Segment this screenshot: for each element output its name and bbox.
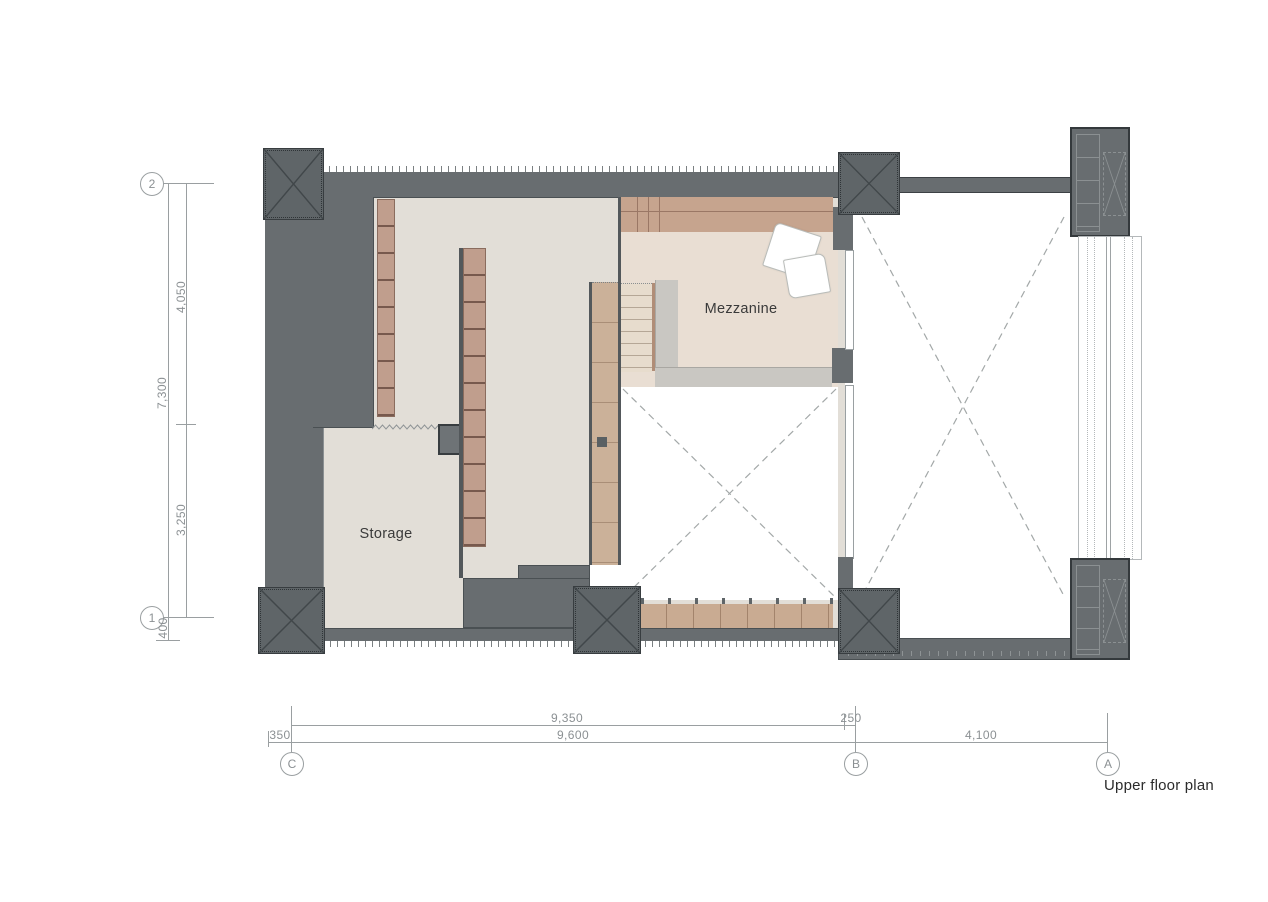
dim-line-left-outer [168,183,169,640]
dim-ext-a [1107,713,1108,752]
glazing-strip-upper [845,250,854,350]
structure-left-cell [1076,134,1100,232]
dim-4100: 4,100 [965,728,997,742]
left-wall-inner-band [313,197,374,428]
central-void-cross [621,387,838,600]
bottom-right-structure [1070,558,1130,660]
dim-line-bottom-lower [268,742,1107,743]
grid-marker-2: 2 [140,172,164,196]
dim-ext-c [291,706,292,752]
grid-marker-c: C [280,752,304,776]
cushion [783,253,831,300]
walkway-fixture [597,437,607,447]
column-top-b [838,152,900,215]
dim-7300: 7,300 [155,377,169,409]
glass-line [1106,237,1107,559]
floor-plan-canvas: Storage Mezzanine 2 1 4,050 7,300 3,250 … [0,0,1268,902]
dim-350: 350 [269,728,290,742]
glazed-facade [1078,236,1142,560]
room-label-storage: Storage [336,526,436,542]
mullion-line [1087,237,1088,559]
lower-wall-stub [838,557,853,588]
mullion-line [1132,237,1133,559]
mullion-line [1124,237,1125,559]
dim-3250: 3,250 [174,504,188,536]
walkway-bridge [592,282,618,566]
structure-shaft-cell [1103,152,1126,216]
glass-line [1110,237,1111,559]
grid-2-line [163,183,214,184]
dim-250: 250 [840,711,861,725]
dim-9600: 9,600 [557,728,589,742]
left-wall-shelving [377,199,395,417]
column-bottom-b [838,588,900,654]
glazing-strip-lower [845,385,854,559]
mezzanine-stairs [621,283,652,372]
top-wall [322,172,845,198]
mezzanine-wood-band [621,197,833,233]
right-void-cross [858,213,1068,600]
grid-1-line [163,617,214,618]
room-label-mezzanine: Mezzanine [681,301,801,317]
storage-bottom-wall [463,578,590,628]
dim-tick [156,640,180,641]
column-top-left [263,148,324,220]
column-mid-bottom [573,586,641,654]
dim-line-left-inner [186,183,187,617]
mullion-line [1094,237,1095,559]
structure-left-cell [1076,565,1100,655]
mezzanine-edge-horizontal [655,367,832,388]
dim-tick [176,424,196,425]
dim-400: 400 [156,617,170,638]
break-line-squiggle [372,423,442,432]
column-bottom-left [258,587,325,654]
mezzanine-corner-stub [832,348,853,383]
dim-line-bottom-upper [291,725,855,726]
bottom-wood-deck [640,604,833,628]
grid-marker-b: B [844,752,868,776]
mid-wall-shelving [463,248,486,547]
grid-marker-a: A [1096,752,1120,776]
drawing-title: Upper floor plan [1104,777,1214,794]
storage-bottom-wall-step [518,565,590,579]
structure-shaft-cell [1103,579,1126,643]
dim-9350: 9,350 [551,711,583,725]
wood-band-plank-joints [627,197,667,232]
top-beam [898,177,1072,193]
dim-4050: 4,050 [174,281,188,313]
top-right-structure [1070,127,1130,237]
